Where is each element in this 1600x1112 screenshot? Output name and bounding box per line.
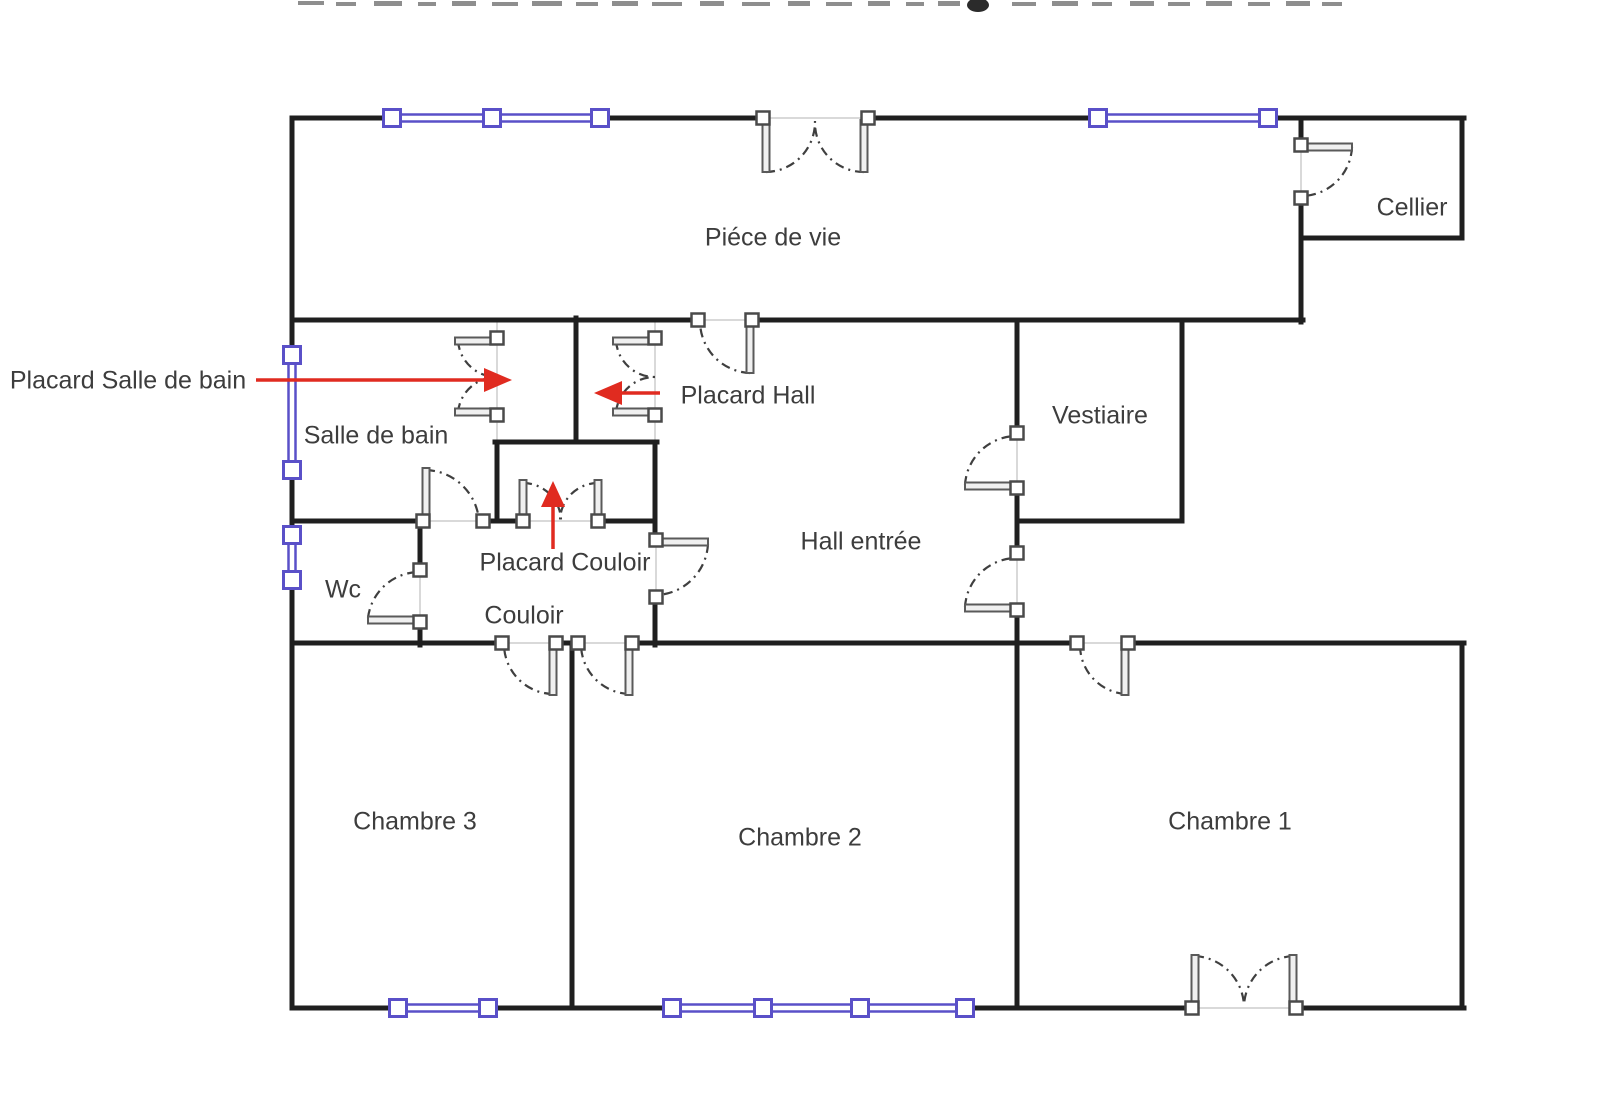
annotation-label-placard-salle-de-bain: Placard Salle de bain xyxy=(10,367,246,395)
door-chambre1-french-arc xyxy=(1195,956,1293,1005)
annotation-label-placard-hall: Placard Hall xyxy=(681,382,816,410)
room-label-salle-de-bain: Salle de bain xyxy=(304,422,449,450)
door-couloir-hall-arc xyxy=(658,544,708,595)
door-hall-top-arc xyxy=(700,322,750,373)
walls xyxy=(292,118,1464,1008)
room-label-hall-entree: Hall entrée xyxy=(801,528,922,556)
door-chambre2-arc xyxy=(581,645,629,694)
door-cellier-arc xyxy=(1301,147,1352,196)
cropped-title-text xyxy=(298,0,1342,12)
door-wc-arc xyxy=(368,572,420,618)
room-label-couloir: Couloir xyxy=(484,602,563,630)
annotation-label-placard-couloir: Placard Couloir xyxy=(480,549,651,577)
room-label-wc: Wc xyxy=(325,576,361,604)
floor-plan: Piéce de vie Cellier Salle de bain Vesti… xyxy=(0,0,1600,1112)
red-arrow-placard-hall xyxy=(594,381,660,405)
door-salle-de-bain-arc xyxy=(426,470,479,521)
window-bathroom xyxy=(289,355,296,470)
window-chambre3 xyxy=(398,1005,488,1012)
room-label-piece-de-vie: Piéce de vie xyxy=(705,224,841,252)
window-chambre2 xyxy=(672,1005,965,1012)
door-chambre3-arc xyxy=(504,645,553,694)
door-vestiaire-arc xyxy=(965,436,1016,485)
room-label-chambre-3: Chambre 3 xyxy=(353,808,477,836)
door-piece-de-vie-double-arc xyxy=(766,121,864,172)
door-hall-lower-arc xyxy=(965,558,1016,607)
red-arrow-placard-couloir xyxy=(541,481,565,549)
room-label-cellier: Cellier xyxy=(1377,194,1448,222)
floor-plan-drawing xyxy=(0,0,1600,1112)
window-top-right xyxy=(1098,115,1268,122)
room-label-vestiaire: Vestiaire xyxy=(1052,402,1148,430)
room-label-chambre-1: Chambre 1 xyxy=(1168,808,1292,836)
room-label-chambre-2: Chambre 2 xyxy=(738,824,862,852)
door-chambre1-arc xyxy=(1080,645,1125,694)
